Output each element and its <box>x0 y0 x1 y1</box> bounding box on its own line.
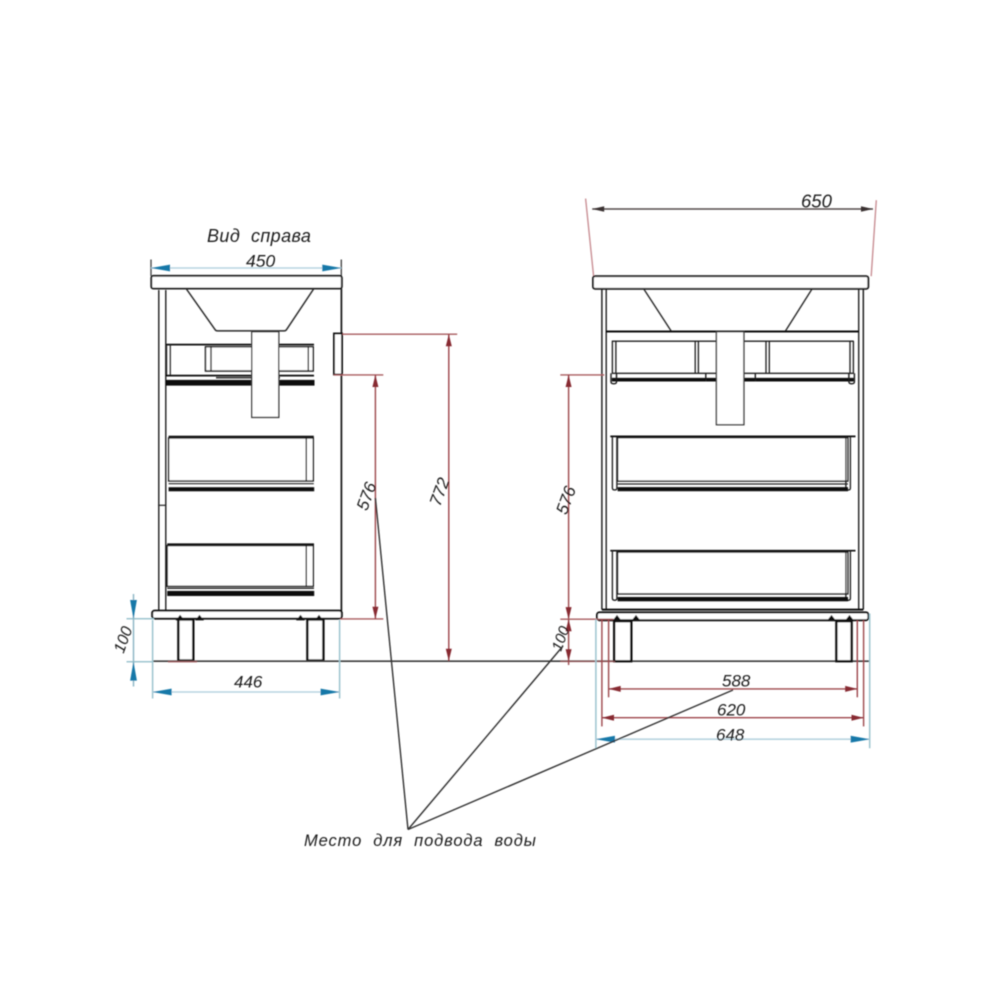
svg-text:Вид справа: Вид справа <box>207 226 311 246</box>
svg-text:620: 620 <box>717 701 746 720</box>
svg-text:100: 100 <box>111 624 136 655</box>
svg-text:650: 650 <box>801 191 833 212</box>
svg-text:450: 450 <box>246 251 275 271</box>
svg-text:446: 446 <box>234 673 263 692</box>
svg-text:576: 576 <box>552 483 580 517</box>
svg-text:648: 648 <box>716 726 745 745</box>
svg-text:588: 588 <box>722 672 751 691</box>
svg-text:Место для подвода воды: Место для подвода воды <box>304 832 537 850</box>
